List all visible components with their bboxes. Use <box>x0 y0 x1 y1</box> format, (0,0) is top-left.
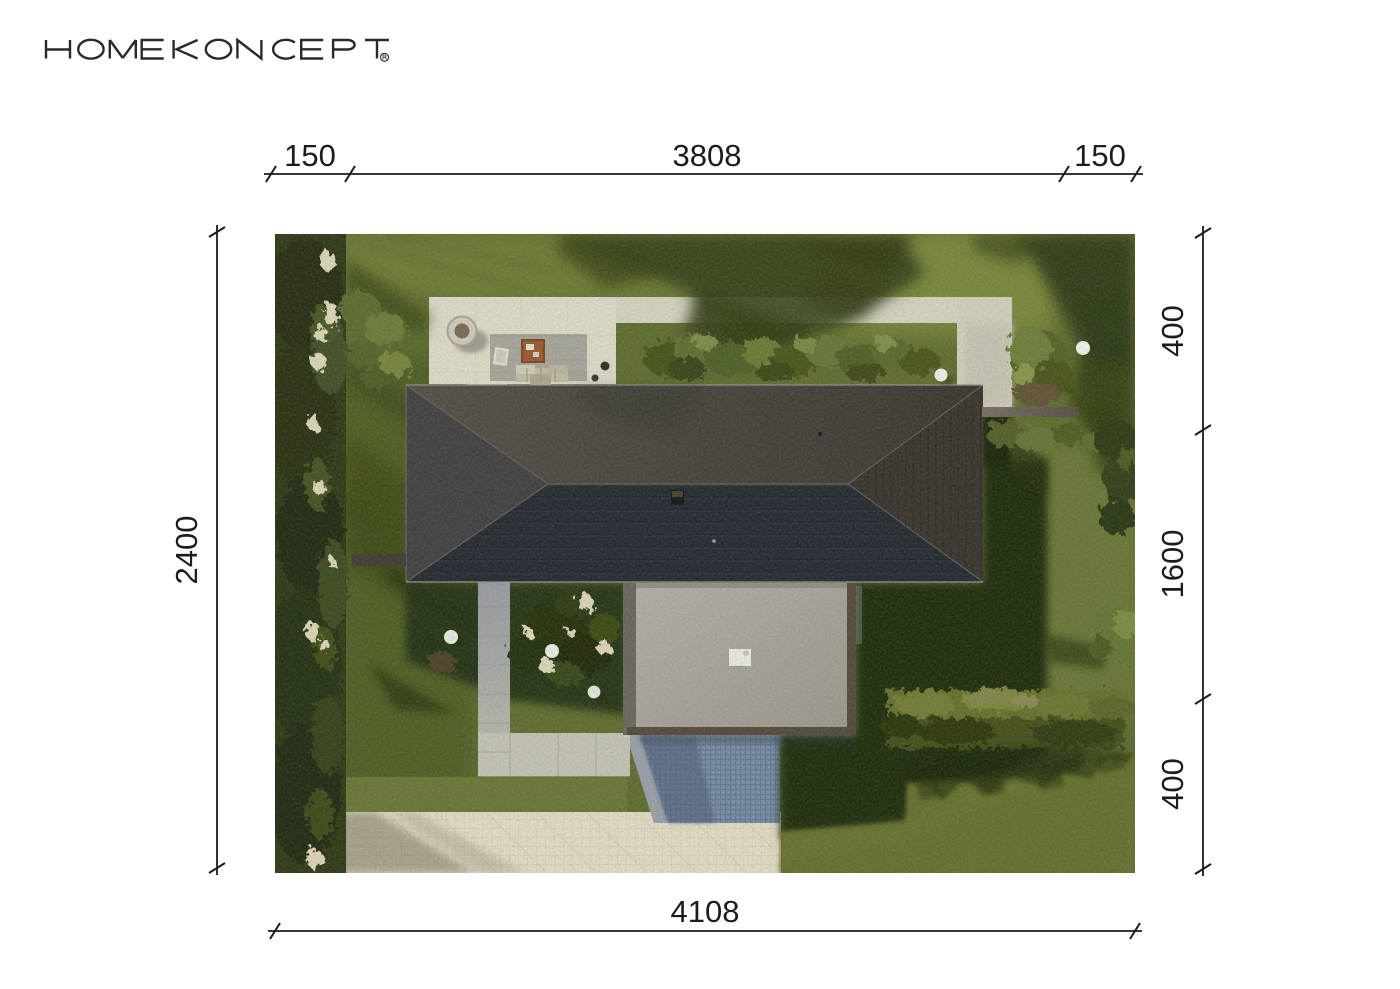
svg-text:150: 150 <box>284 138 336 173</box>
svg-text:150: 150 <box>1074 138 1126 173</box>
svg-text:3808: 3808 <box>673 138 742 173</box>
svg-text:2400: 2400 <box>169 516 204 585</box>
svg-text:1600: 1600 <box>1155 530 1190 599</box>
svg-text:400: 400 <box>1155 758 1190 810</box>
svg-text:4108: 4108 <box>671 894 740 929</box>
svg-text:400: 400 <box>1155 305 1190 357</box>
